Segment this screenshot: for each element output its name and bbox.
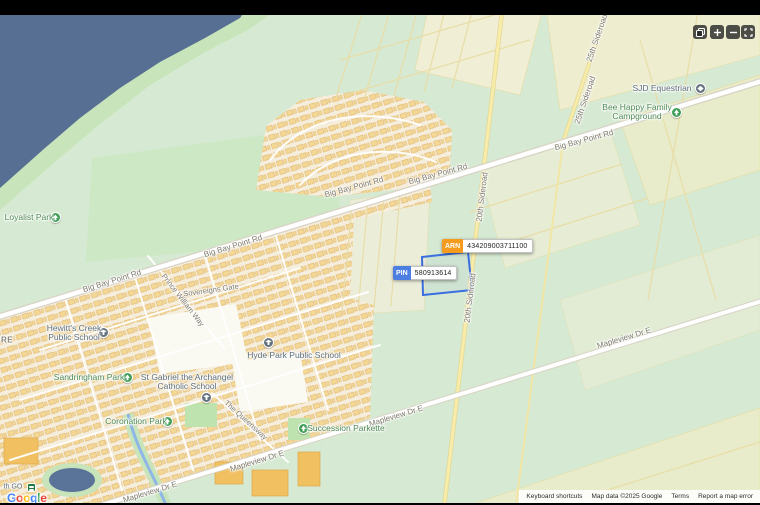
poi-label[interactable]: Sandringham Park	[54, 372, 124, 382]
poi-label[interactable]: SJD Equestrian	[632, 83, 691, 93]
attribution-bar: Keyboard shortcuts Map data ©2025 Google…	[519, 490, 760, 503]
school-icon[interactable]	[263, 337, 274, 348]
poi-label[interactable]: Succession Parkette	[307, 423, 384, 433]
poi-label[interactable]: Coronation Park	[105, 416, 166, 426]
poi-label[interactable]: Catholic School	[157, 381, 216, 391]
report-error-link[interactable]: Report a map error	[698, 493, 753, 500]
station-label-cutoff[interactable]: th GO	[4, 484, 23, 491]
equestrian-icon[interactable]	[695, 83, 706, 94]
pin-badge[interactable]: PIN 580913614	[393, 266, 457, 280]
poi-label[interactable]: Public School	[48, 332, 100, 342]
keyboard-shortcuts-link[interactable]: Keyboard shortcuts	[526, 493, 582, 500]
poi-label[interactable]: Hyde Park Public School	[247, 350, 341, 360]
zoom-out-button[interactable]	[726, 25, 740, 39]
map-data-text: Map data ©2025 Google	[591, 493, 662, 500]
campground-icon[interactable]	[671, 107, 682, 118]
poi-label[interactable]: Loyalist Park	[5, 212, 54, 222]
area-label-cutoff: RE	[1, 336, 13, 345]
letterbox-top	[0, 0, 760, 15]
school-icon[interactable]	[201, 392, 212, 403]
zoom-in-button[interactable]	[710, 25, 724, 39]
map-viewport[interactable]: Big Bay Point Rd Big Bay Point Rd Big Ba…	[0, 0, 760, 505]
fullscreen-button[interactable]	[741, 25, 755, 39]
pin-value: 580913614	[411, 266, 457, 280]
arn-value: 434209003711100	[463, 239, 532, 253]
arn-badge[interactable]: ARN 434209003711100	[442, 239, 533, 253]
pin-chip: PIN	[393, 266, 411, 280]
poi-label[interactable]: Campground	[612, 111, 661, 121]
terms-link[interactable]: Terms	[671, 493, 689, 500]
screenshot-button[interactable]	[693, 25, 707, 39]
arn-chip: ARN	[442, 239, 463, 253]
